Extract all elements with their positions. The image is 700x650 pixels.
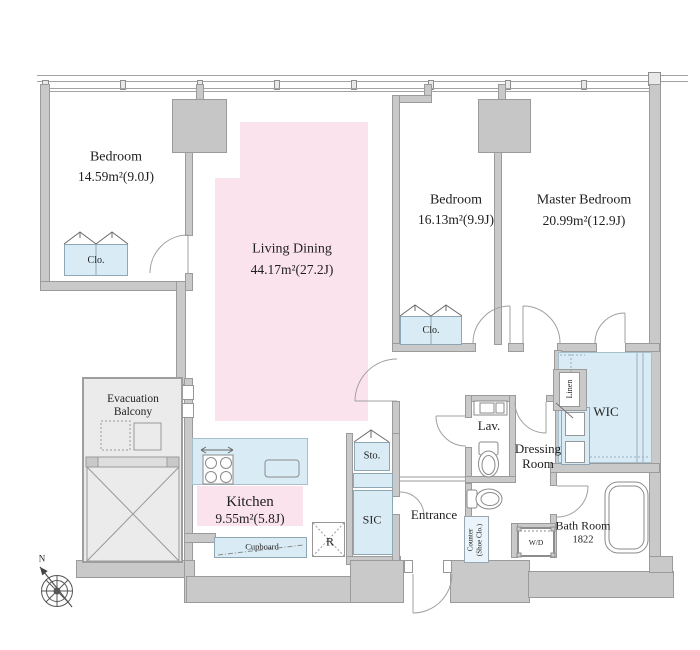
- wall: [40, 281, 186, 291]
- toilet2-bowl-inner: [481, 493, 499, 506]
- door-arc-lavatory: [436, 416, 466, 446]
- toilet2-bowl: [476, 489, 502, 509]
- wall: [625, 343, 660, 352]
- wall: [649, 556, 673, 573]
- bathtub: [605, 482, 648, 553]
- bedroom2-area: 16.13m²(9.9J): [418, 213, 494, 227]
- shoe-counter-label: (Shoe Clo.): [476, 524, 483, 556]
- shoe-counter-label: Counter: [467, 529, 474, 552]
- wall: [40, 84, 50, 290]
- wall: [450, 560, 530, 603]
- entrance-label: Entrance: [411, 508, 457, 522]
- dressing-room-label: Room: [522, 457, 554, 471]
- pillar: [172, 99, 227, 153]
- storage-label: Sto.: [364, 450, 381, 461]
- evacuation-balcony-label: Balcony: [114, 406, 152, 418]
- kitchen-area: 9.55m²(5.8J): [215, 512, 284, 526]
- door-arc-dressing: [515, 402, 546, 433]
- kitchen-name: Kitchen: [226, 495, 273, 511]
- bedroom1-name: Bedroom: [90, 151, 142, 166]
- wall: [176, 281, 186, 385]
- vanity-counter: [474, 401, 507, 415]
- washer-dryer-label: W/D: [529, 539, 544, 547]
- floor-plan: Bedroom 14.59m²(9.0J) Living Dining 44.1…: [0, 0, 700, 650]
- vanity-basin: [496, 403, 504, 413]
- kitchen-counter: [192, 438, 308, 485]
- vanity-basin: [480, 403, 494, 413]
- wall: [508, 343, 524, 352]
- door-arc-bedroom2: [473, 306, 510, 343]
- master-bedroom-area: 20.99m²(12.9J): [543, 214, 626, 228]
- wall: [184, 533, 216, 543]
- wall: [557, 343, 597, 352]
- cabinet-drawer: [565, 412, 585, 436]
- balcony-railing: [37, 75, 688, 82]
- wall: [196, 84, 204, 100]
- door-arc-wic: [595, 313, 625, 343]
- refrigerator-label: R: [326, 536, 334, 549]
- living-dining-area: [240, 122, 368, 179]
- bedroom1-area: 14.59m²(9.0J): [78, 170, 154, 184]
- bifold-closet2: [400, 305, 462, 316]
- cupboard-label: Cupboard: [245, 543, 279, 552]
- wall: [550, 472, 557, 486]
- door-jamb: [443, 560, 452, 573]
- lavatory-label: Lav.: [478, 419, 501, 433]
- dressing-room-label: Dressing: [515, 442, 561, 456]
- wall: [509, 395, 516, 483]
- bedroom2-name: Bedroom: [430, 194, 482, 209]
- bath-room-label: Bath Room: [555, 520, 610, 533]
- wall: [392, 95, 400, 348]
- living-dining-name: Living Dining: [252, 243, 332, 258]
- sic-shelf: [353, 473, 393, 488]
- wall: [350, 560, 404, 603]
- toilet-tank: [479, 442, 498, 455]
- wall: [186, 576, 353, 603]
- closet2-label: Clo.: [423, 326, 440, 337]
- living-dining-area: [215, 178, 368, 421]
- door-arc-master: [523, 306, 560, 343]
- toilet-bowl-inner: [482, 456, 495, 475]
- wall: [465, 395, 472, 418]
- bathtub-inner: [609, 486, 644, 549]
- evacuation-balcony-label: Evacuation: [107, 393, 159, 405]
- wall: [528, 571, 674, 598]
- wall: [465, 483, 472, 519]
- sic-label: SIC: [363, 514, 382, 527]
- cabinet-drawer: [565, 441, 585, 463]
- compass-icon: [40, 567, 73, 607]
- door-arc-bath: [557, 486, 588, 517]
- linen-label: Linen: [565, 380, 573, 399]
- wic-label: WIC: [593, 405, 618, 419]
- wall: [392, 433, 400, 497]
- wall: [649, 84, 661, 558]
- living-dining-area: 44.17m²(27.2J): [251, 263, 334, 277]
- bifold-storage: [354, 430, 389, 442]
- toilet-bowl: [479, 451, 499, 477]
- door-arc-bedroom1: [150, 235, 188, 273]
- window-line: [49, 88, 649, 92]
- door-arc-entrance: [413, 574, 452, 613]
- door-jamb: [404, 560, 413, 573]
- wall: [465, 476, 516, 483]
- wall: [185, 273, 193, 291]
- bifold-closet1: [64, 232, 128, 244]
- master-bedroom-name: Master Bedroom: [537, 194, 631, 209]
- wall: [392, 514, 400, 565]
- closet1-label: Clo.: [88, 256, 105, 267]
- compass-north-label: N: [39, 554, 46, 563]
- bath-room-size: 1822: [573, 534, 594, 545]
- wall: [498, 84, 506, 100]
- wall: [346, 433, 353, 565]
- wall: [494, 152, 502, 345]
- wall: [185, 152, 193, 236]
- pillar: [478, 99, 531, 153]
